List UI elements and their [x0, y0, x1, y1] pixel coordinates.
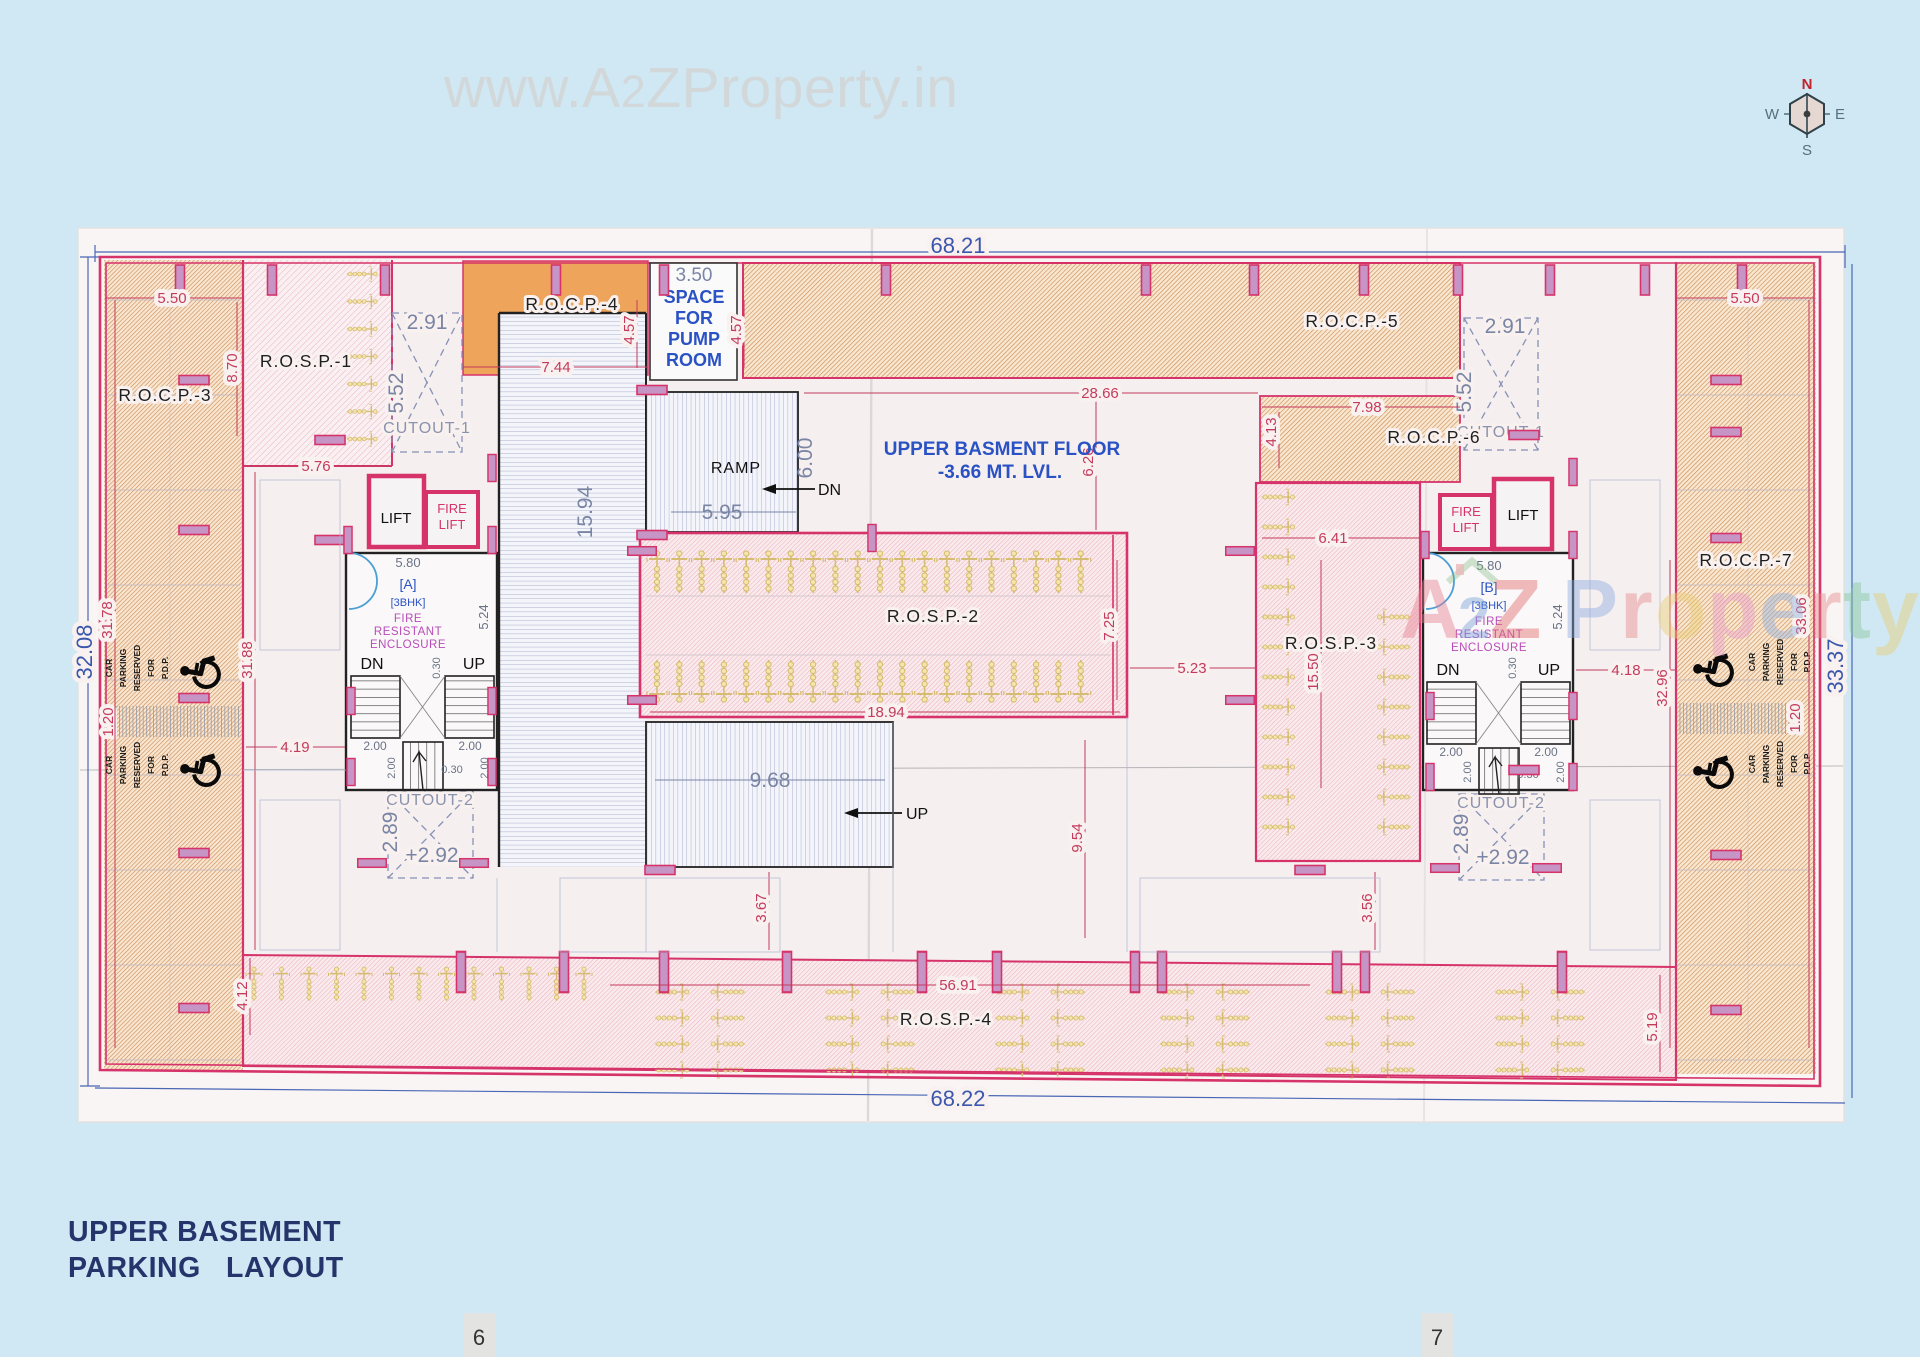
svg-text:R.O.C.P.-5: R.O.C.P.-5 [1305, 311, 1398, 331]
svg-text:9.54: 9.54 [1069, 823, 1086, 852]
svg-text:2.91: 2.91 [1485, 315, 1526, 338]
svg-text:FOR: FOR [675, 308, 713, 328]
svg-text:FIRE: FIRE [437, 501, 467, 516]
svg-text:32.96: 32.96 [1654, 669, 1671, 707]
svg-text:0.30: 0.30 [1507, 657, 1519, 678]
svg-text:7: 7 [1431, 1325, 1443, 1350]
svg-text:ROOM: ROOM [666, 350, 722, 370]
svg-text:7.44: 7.44 [541, 359, 570, 376]
svg-text:6: 6 [473, 1325, 485, 1350]
svg-text:7.25: 7.25 [1101, 611, 1118, 640]
svg-text:P.D.P: P.D.P [1802, 753, 1812, 774]
svg-text:0.30: 0.30 [441, 764, 462, 776]
svg-text:32.08: 32.08 [72, 624, 97, 679]
svg-text:68.21: 68.21 [930, 233, 985, 258]
svg-text:6.00: 6.00 [794, 438, 817, 479]
svg-text:2.00: 2.00 [458, 739, 482, 753]
svg-text:www.A2ZProperty.in: www.A2ZProperty.in [443, 56, 958, 120]
svg-text:4.18: 4.18 [1611, 662, 1640, 679]
svg-text:UPPER BASMENT FLOOR: UPPER BASMENT FLOOR [884, 439, 1121, 460]
svg-text:5.76: 5.76 [301, 458, 330, 475]
svg-text:5.80: 5.80 [395, 555, 420, 570]
svg-text:UP: UP [1538, 662, 1560, 679]
svg-text:3.56: 3.56 [1359, 893, 1376, 922]
svg-text:N: N [1802, 76, 1813, 93]
svg-text:DN: DN [1436, 662, 1459, 679]
svg-text:Z: Z [1490, 562, 1541, 656]
svg-text:CUTOUT-2: CUTOUT-2 [1457, 795, 1545, 812]
svg-text:FOR: FOR [1789, 755, 1799, 773]
svg-text:LIFT: LIFT [1453, 520, 1480, 535]
svg-text:R.O.C.P.-6: R.O.C.P.-6 [1387, 427, 1480, 447]
svg-text:S: S [1802, 142, 1812, 159]
svg-text:FIRE: FIRE [394, 613, 422, 625]
svg-text:2.91: 2.91 [407, 311, 448, 334]
svg-text:+2.92: +2.92 [405, 844, 458, 867]
svg-text:y: y [1872, 562, 1919, 656]
svg-text:5.50: 5.50 [1730, 290, 1759, 307]
svg-text:UP: UP [463, 656, 485, 673]
svg-text:5.19: 5.19 [1644, 1012, 1661, 1041]
svg-text:R.O.C.P.-3: R.O.C.P.-3 [118, 385, 211, 405]
svg-text:3.50: 3.50 [676, 265, 713, 286]
svg-text:2.00: 2.00 [363, 739, 387, 753]
svg-text:31.88: 31.88 [239, 641, 256, 679]
svg-text:UP: UP [906, 806, 928, 823]
svg-text:15.50: 15.50 [1305, 653, 1322, 691]
svg-text:R.O.S.P.-3: R.O.S.P.-3 [1285, 633, 1377, 653]
svg-text:4.57: 4.57 [621, 315, 638, 344]
svg-text:1.20: 1.20 [100, 707, 117, 736]
svg-text:2.00: 2.00 [1439, 745, 1463, 759]
svg-text:FIRE: FIRE [1451, 504, 1481, 519]
svg-text:CAR: CAR [104, 659, 114, 677]
svg-text:e: e [1759, 562, 1806, 656]
svg-text:4.19: 4.19 [280, 739, 309, 756]
svg-text:DN: DN [360, 656, 383, 673]
svg-text:2.00: 2.00 [1555, 761, 1567, 782]
svg-text:LIFT: LIFT [1508, 507, 1539, 524]
svg-text:[A]: [A] [399, 576, 416, 592]
svg-text:2.00: 2.00 [1462, 761, 1474, 782]
svg-text:RESERVED: RESERVED [132, 645, 142, 692]
svg-text:CAR: CAR [104, 756, 114, 774]
svg-text:P.D.P.: P.D.P. [160, 754, 170, 776]
svg-text:E: E [1835, 106, 1845, 123]
svg-text:4.57: 4.57 [728, 315, 745, 344]
svg-text:0.30: 0.30 [431, 657, 443, 678]
svg-text:+2.92: +2.92 [1476, 846, 1529, 869]
svg-text:15.94: 15.94 [574, 485, 597, 538]
svg-text:2.00: 2.00 [386, 757, 398, 778]
svg-text:28.66: 28.66 [1081, 385, 1119, 402]
svg-text:CAR: CAR [1747, 755, 1757, 773]
svg-text:5.52: 5.52 [385, 373, 408, 414]
svg-text:2.89: 2.89 [379, 812, 402, 853]
svg-text:5.23: 5.23 [1177, 660, 1206, 677]
svg-text:PUMP: PUMP [668, 329, 720, 349]
svg-text:SPACE: SPACE [664, 287, 725, 307]
svg-text:LIFT: LIFT [381, 510, 412, 527]
svg-text:PARKING: PARKING [118, 648, 128, 687]
svg-text:R.O.C.P.-4: R.O.C.P.-4 [525, 294, 618, 314]
svg-text:DN: DN [818, 482, 841, 499]
svg-text:68.22: 68.22 [930, 1086, 985, 1111]
svg-text:R.O.S.P.-2: R.O.S.P.-2 [887, 606, 979, 626]
svg-text:2.00: 2.00 [1534, 745, 1558, 759]
svg-text:4.12: 4.12 [234, 981, 251, 1010]
svg-text:A: A [1400, 562, 1461, 656]
svg-text:RESERVED: RESERVED [1775, 741, 1785, 788]
svg-text:8.70: 8.70 [224, 353, 241, 382]
svg-text:4.13: 4.13 [1263, 417, 1280, 446]
svg-text:2: 2 [1458, 586, 1490, 651]
svg-text:FOR: FOR [146, 756, 156, 774]
svg-text:5.50: 5.50 [157, 290, 186, 307]
svg-text:LIFT: LIFT [439, 517, 466, 532]
svg-text:FOR: FOR [146, 659, 156, 677]
svg-text:7.98: 7.98 [1352, 399, 1381, 416]
svg-text:1.20: 1.20 [1787, 703, 1804, 732]
svg-text:r: r [1809, 562, 1842, 656]
svg-text:56.91: 56.91 [939, 977, 977, 994]
svg-text:[3BHK]: [3BHK] [391, 597, 426, 609]
svg-text:2.89: 2.89 [1450, 814, 1473, 855]
svg-text:3.67: 3.67 [753, 893, 770, 922]
svg-text:UPPER BASEMENT: UPPER BASEMENT [68, 1216, 341, 1248]
svg-text:6.41: 6.41 [1318, 530, 1347, 547]
svg-text:R.O.S.P.-4: R.O.S.P.-4 [900, 1009, 992, 1029]
svg-text:r: r [1620, 562, 1653, 656]
svg-text:ENCLOSURE: ENCLOSURE [370, 639, 446, 651]
svg-text:RESISTANT: RESISTANT [374, 626, 442, 638]
svg-text:RESERVED: RESERVED [132, 742, 142, 789]
svg-text:PARKING: PARKING [1761, 744, 1771, 783]
svg-text:PARKING LAYOUT: PARKING LAYOUT [68, 1252, 344, 1284]
svg-text:31.78: 31.78 [99, 601, 116, 639]
svg-text:CUTOUT-2: CUTOUT-2 [386, 792, 474, 809]
svg-text:p: p [1707, 562, 1758, 656]
svg-text:-3.66 MT. LVL.: -3.66 MT. LVL. [938, 462, 1062, 483]
svg-text:P.D.P.: P.D.P. [160, 657, 170, 679]
svg-text:CUTOUT-1: CUTOUT-1 [383, 420, 471, 437]
svg-text:PARKING: PARKING [118, 745, 128, 784]
svg-text:W: W [1765, 106, 1780, 123]
svg-text:R.O.S.P.-1: R.O.S.P.-1 [260, 351, 352, 371]
svg-text:t: t [1843, 562, 1871, 656]
svg-text:RAMP: RAMP [711, 460, 761, 477]
svg-text:18.94: 18.94 [867, 704, 905, 721]
svg-text:o: o [1655, 562, 1706, 656]
svg-text:5.52: 5.52 [1453, 372, 1476, 413]
svg-text:P: P [1562, 562, 1618, 656]
svg-text:5.24: 5.24 [476, 604, 491, 629]
